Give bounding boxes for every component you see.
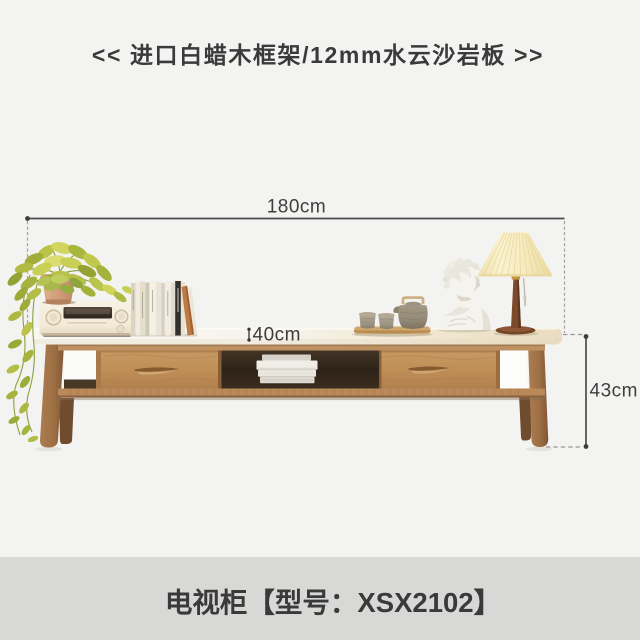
svg-text:电视柜【型号：XSX2102】: 电视柜【型号：XSX2102】 — [165, 587, 501, 618]
svg-text:43cm: 43cm — [590, 381, 638, 402]
svg-text:<< 进口白蜡木框架/12mm水云沙岩板 >>: << 进口白蜡木框架/12mm水云沙岩板 >> — [92, 42, 544, 68]
svg-text:180cm: 180cm — [267, 197, 327, 218]
svg-text:40cm: 40cm — [253, 325, 301, 346]
